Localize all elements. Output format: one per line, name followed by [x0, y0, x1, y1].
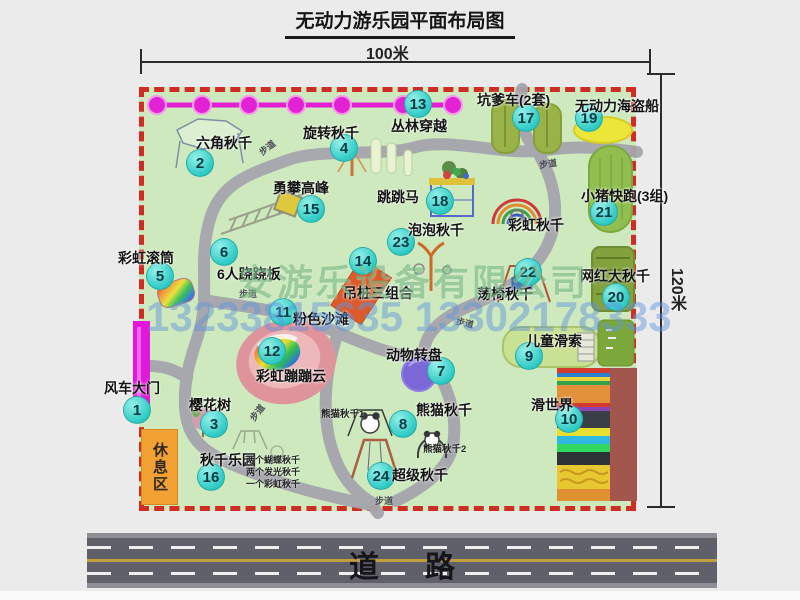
windmill-gate-label: 风车大门 — [104, 378, 160, 398]
windmill-gate-number: 1 — [123, 396, 151, 424]
hexagon-swing-number: 2 — [186, 149, 214, 177]
slide-world-label: 滑世界 — [531, 395, 573, 415]
piggy-run-label: 小猪快跑(3组) — [581, 186, 668, 206]
road: 道路 — [87, 533, 717, 588]
panda-swing-2-sublabel: 熊猫秋千2 — [423, 441, 466, 455]
jumping-horse-number: 18 — [426, 187, 454, 215]
animal-carousel-label: 动物转盘 — [386, 345, 442, 365]
phone-watermark: 13233815635 13302178333 — [146, 293, 672, 341]
big-net-swing-label: 网红大秋千 — [580, 266, 650, 286]
bottom-margin — [0, 591, 800, 600]
rainbow-bounce-cloud-label: 彩虹蹦蹦云 — [256, 366, 326, 386]
right-dimension-tick-top — [647, 73, 675, 75]
rainbow-swing-label: 彩虹秋千 — [508, 215, 564, 235]
swing-list-item-3: 一个彩虹秋千 — [246, 477, 300, 490]
panda-swing-number: 8 — [389, 410, 417, 438]
pirate-ship-label: 无动力海盗船 — [575, 96, 659, 116]
top-dimension-tick-left — [140, 49, 142, 74]
jungle-crossing-number: 13 — [404, 90, 432, 118]
footpath-label: 步道 — [375, 494, 393, 507]
rainbow-bounce-cloud-number: 12 — [258, 337, 286, 365]
panda-swing-1-sublabel: 熊猫秋千1 — [321, 406, 364, 420]
rest-area-label: 休息区 — [149, 442, 170, 493]
top-dimension-tick-right — [649, 49, 651, 74]
jungle-crossing-label: 丛林穿越 — [391, 116, 447, 136]
rotating-swing-label: 旋转秋千 — [303, 123, 359, 143]
seesaw-number: 6 — [210, 238, 238, 266]
panda-swing-label: 熊猫秋千 — [416, 400, 472, 420]
width-dimension-label: 100米 — [366, 40, 409, 64]
page-title-text: 无动力游乐园平面布局图 — [285, 6, 514, 39]
right-dimension-line — [660, 74, 662, 508]
rainbow-roller-label: 彩虹滚筒 — [118, 248, 174, 268]
super-swing-number: 24 — [367, 462, 395, 490]
jumping-horse-label: 跳跳马 — [377, 187, 419, 207]
right-dimension-tick-bottom — [647, 506, 675, 508]
brave-climb-number: 15 — [297, 195, 325, 223]
page-title: 无动力游乐园平面布局图 — [0, 6, 800, 39]
kengdie-car-label: 坑爹车(2套) — [477, 90, 550, 110]
park-layout-map: 无动力游乐园平面布局图 100米 120米 — [0, 0, 800, 600]
bubble-swing-label: 泡泡秋千 — [408, 220, 464, 240]
brave-climb-label: 勇攀高峰 — [273, 178, 329, 198]
cherry-tree-label: 樱花树 — [189, 395, 231, 415]
super-swing-label: 超级秋千 — [392, 465, 448, 485]
road-label: 道路 — [87, 542, 717, 586]
rest-area: 休息区 — [141, 429, 178, 505]
footpath-label: 步道 — [538, 156, 558, 171]
hexagon-swing-label: 六角秋千 — [196, 133, 252, 153]
